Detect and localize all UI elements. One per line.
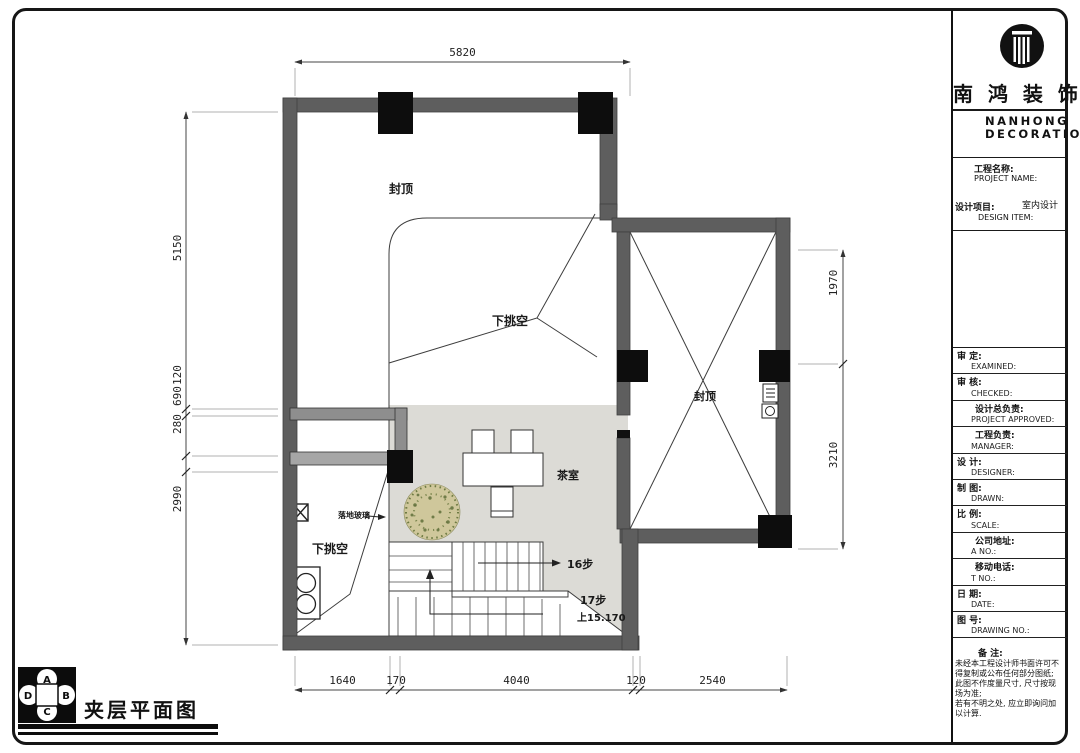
title-underline-1: [18, 724, 218, 729]
compass-letter-d: D: [24, 691, 32, 702]
label-steps17: 17步: [580, 592, 606, 608]
tb-row-en: DRAWING NO.:: [971, 626, 1030, 635]
door-tick: [617, 430, 630, 438]
label-capped-right: 封顶: [694, 388, 716, 404]
tb-row-scale: 比 例: SCALE:: [953, 505, 1067, 533]
tb-row-checked: 审 核: CHECKED:: [953, 373, 1067, 401]
brand-name-en2: DECORATION: [985, 127, 1080, 141]
tb-row-project-approved: 设计总负责: PROJECT APPROVED:: [953, 400, 1067, 427]
label-tea-room: 茶室: [557, 467, 579, 483]
tb-row-cn: 制 图:: [957, 481, 982, 494]
label-void-center: 下挑空: [492, 312, 528, 329]
tb-row-a-no: 公司地址: A NO.:: [953, 532, 1067, 559]
label-void-bottom: 下挑空: [312, 540, 348, 557]
plant: [404, 484, 460, 540]
tb-row-cn: 工程负责:: [975, 428, 1015, 441]
tb-row-en: EXAMINED:: [971, 362, 1016, 371]
tb-row-cn: 比 例:: [957, 507, 982, 520]
wall-fixture: [762, 384, 778, 418]
tb-row-en: DATE:: [971, 600, 995, 609]
tb-row-cn: 日 期:: [957, 587, 982, 600]
tb-row-cn: 设计总负责:: [975, 402, 1024, 415]
label-floor-glass: 落地玻璃: [338, 510, 370, 521]
compass-letter-b: B: [62, 691, 70, 702]
note-line-3: 此图不作度量尺寸, 尺寸按现: [955, 679, 1067, 689]
tb-row-cn: 图 号:: [957, 613, 982, 626]
notes-label: 备 注:: [978, 646, 1080, 659]
note-line-2: 得复制或公布任何部分图纸;: [955, 669, 1067, 679]
dim-bottom-2540: 2540: [690, 674, 735, 687]
design-item-label-en: DESIGN ITEM:: [978, 213, 1080, 222]
dim-right-3210: 3210: [827, 435, 839, 475]
orientation-compass: A B C D: [18, 667, 76, 723]
dim-bottom-1640: 1640: [320, 674, 365, 687]
tb-row-manager: 工程负责: MANAGER:: [953, 426, 1067, 454]
tb-row-en: DESIGNER:: [971, 468, 1015, 477]
compass-letter-a: A: [43, 675, 51, 686]
tb-row-en: T NO.:: [971, 574, 996, 583]
tb-row-cn: 公司地址:: [975, 534, 1015, 547]
floor-plan-canvas: [0, 0, 1080, 753]
tb-row-designer: 设 计: DESIGNER:: [953, 453, 1067, 480]
label-up-elevation: 上15.170: [577, 609, 626, 624]
brand-name-en1: NANHONG: [985, 114, 1069, 128]
tb-row-drawing-no: 图 号: DRAWING NO.:: [953, 611, 1067, 638]
tb-row-en: DRAWN:: [971, 494, 1004, 503]
title-underline-2: [18, 732, 218, 735]
project-name-label-en: PROJECT NAME:: [974, 174, 1080, 183]
note-line-5: 若有不明之处, 应立即询问加: [955, 699, 1067, 709]
design-item-value: 室内设计: [1022, 198, 1080, 211]
tb-row-en: A NO.:: [971, 547, 996, 556]
note-line-6: 以计算.: [955, 709, 1067, 719]
tb-row-cn: 审 核:: [957, 375, 982, 388]
note-line-4: 场为准;: [955, 689, 1067, 699]
tb-row-examined: 审 定: EXAMINED:: [953, 347, 1067, 374]
dim-left-280: 280: [171, 404, 183, 444]
dim-left-2990: 2990: [171, 479, 183, 519]
compass-letter-c: C: [43, 707, 50, 718]
drawing-sheet: 封顶 下挑空 茶室 下挑空 落地玻璃 16步 17步 上15.170 封顶 58…: [0, 0, 1080, 753]
brand-logo-icon: [998, 22, 1046, 70]
label-steps16: 16步: [567, 556, 593, 572]
brand-name-cn: 南 鸿 装 饰: [953, 78, 1067, 107]
tb-row-cn: 审 定:: [957, 349, 982, 362]
tb-row-en: CHECKED:: [971, 389, 1012, 398]
tb-row-cn: 设 计:: [957, 455, 982, 468]
tb-row-drawn: 制 图: DRAWN:: [953, 479, 1067, 506]
dim-right-1970: 1970: [827, 263, 839, 303]
brand-rule: [953, 109, 1067, 111]
capped-room-cross: [630, 232, 776, 529]
dim-bottom-4040: 4040: [494, 674, 539, 687]
tb-row-date: 日 期: DATE:: [953, 585, 1067, 612]
dim-top-5820: 5820: [440, 46, 485, 59]
tb-rule-2: [953, 230, 1067, 231]
dim-left-5150: 5150: [171, 228, 183, 268]
tb-row-en: MANAGER:: [971, 442, 1014, 451]
tb-row-cn: 移动电话:: [975, 560, 1015, 573]
tb-rule-1: [953, 157, 1067, 158]
note-line-1: 未经本工程设计师书面许可不: [955, 659, 1067, 669]
tb-row-t-no: 移动电话: T NO.:: [953, 558, 1067, 586]
label-capped-left: 封顶: [389, 180, 413, 197]
dim-bottom-120: 120: [618, 674, 654, 687]
dim-bottom-170: 170: [378, 674, 414, 687]
tb-row-en: SCALE:: [971, 521, 999, 530]
drawing-title: 夹层平面图: [84, 694, 199, 723]
tb-row-en: PROJECT APPROVED:: [971, 415, 1054, 424]
